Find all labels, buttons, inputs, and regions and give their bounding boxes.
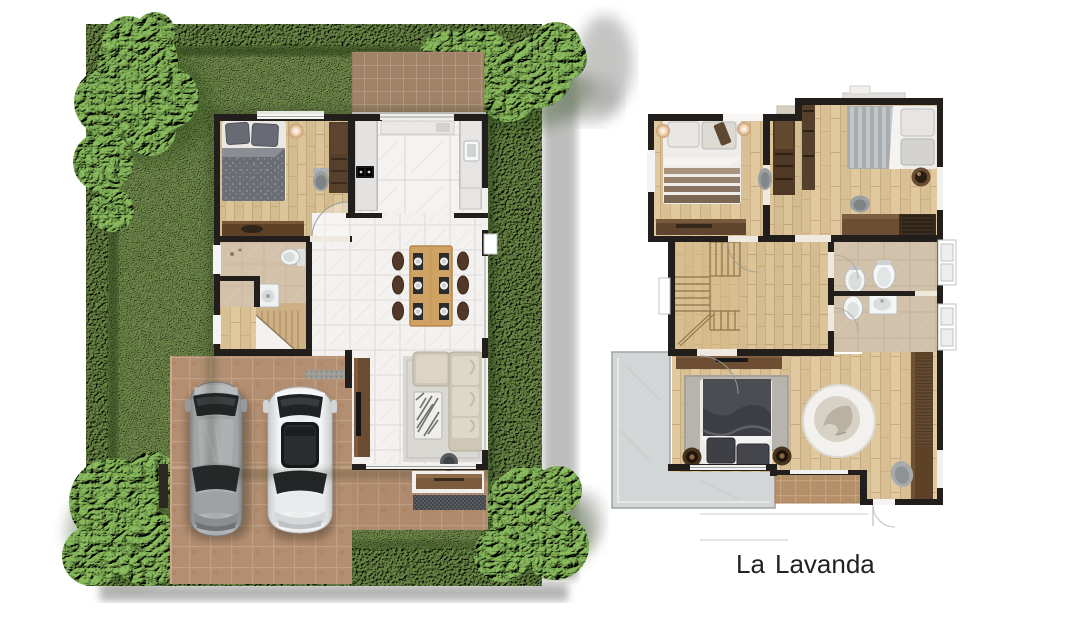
svg-text:Lavanda: Lavanda: [775, 549, 875, 579]
svg-text:La: La: [736, 549, 765, 579]
